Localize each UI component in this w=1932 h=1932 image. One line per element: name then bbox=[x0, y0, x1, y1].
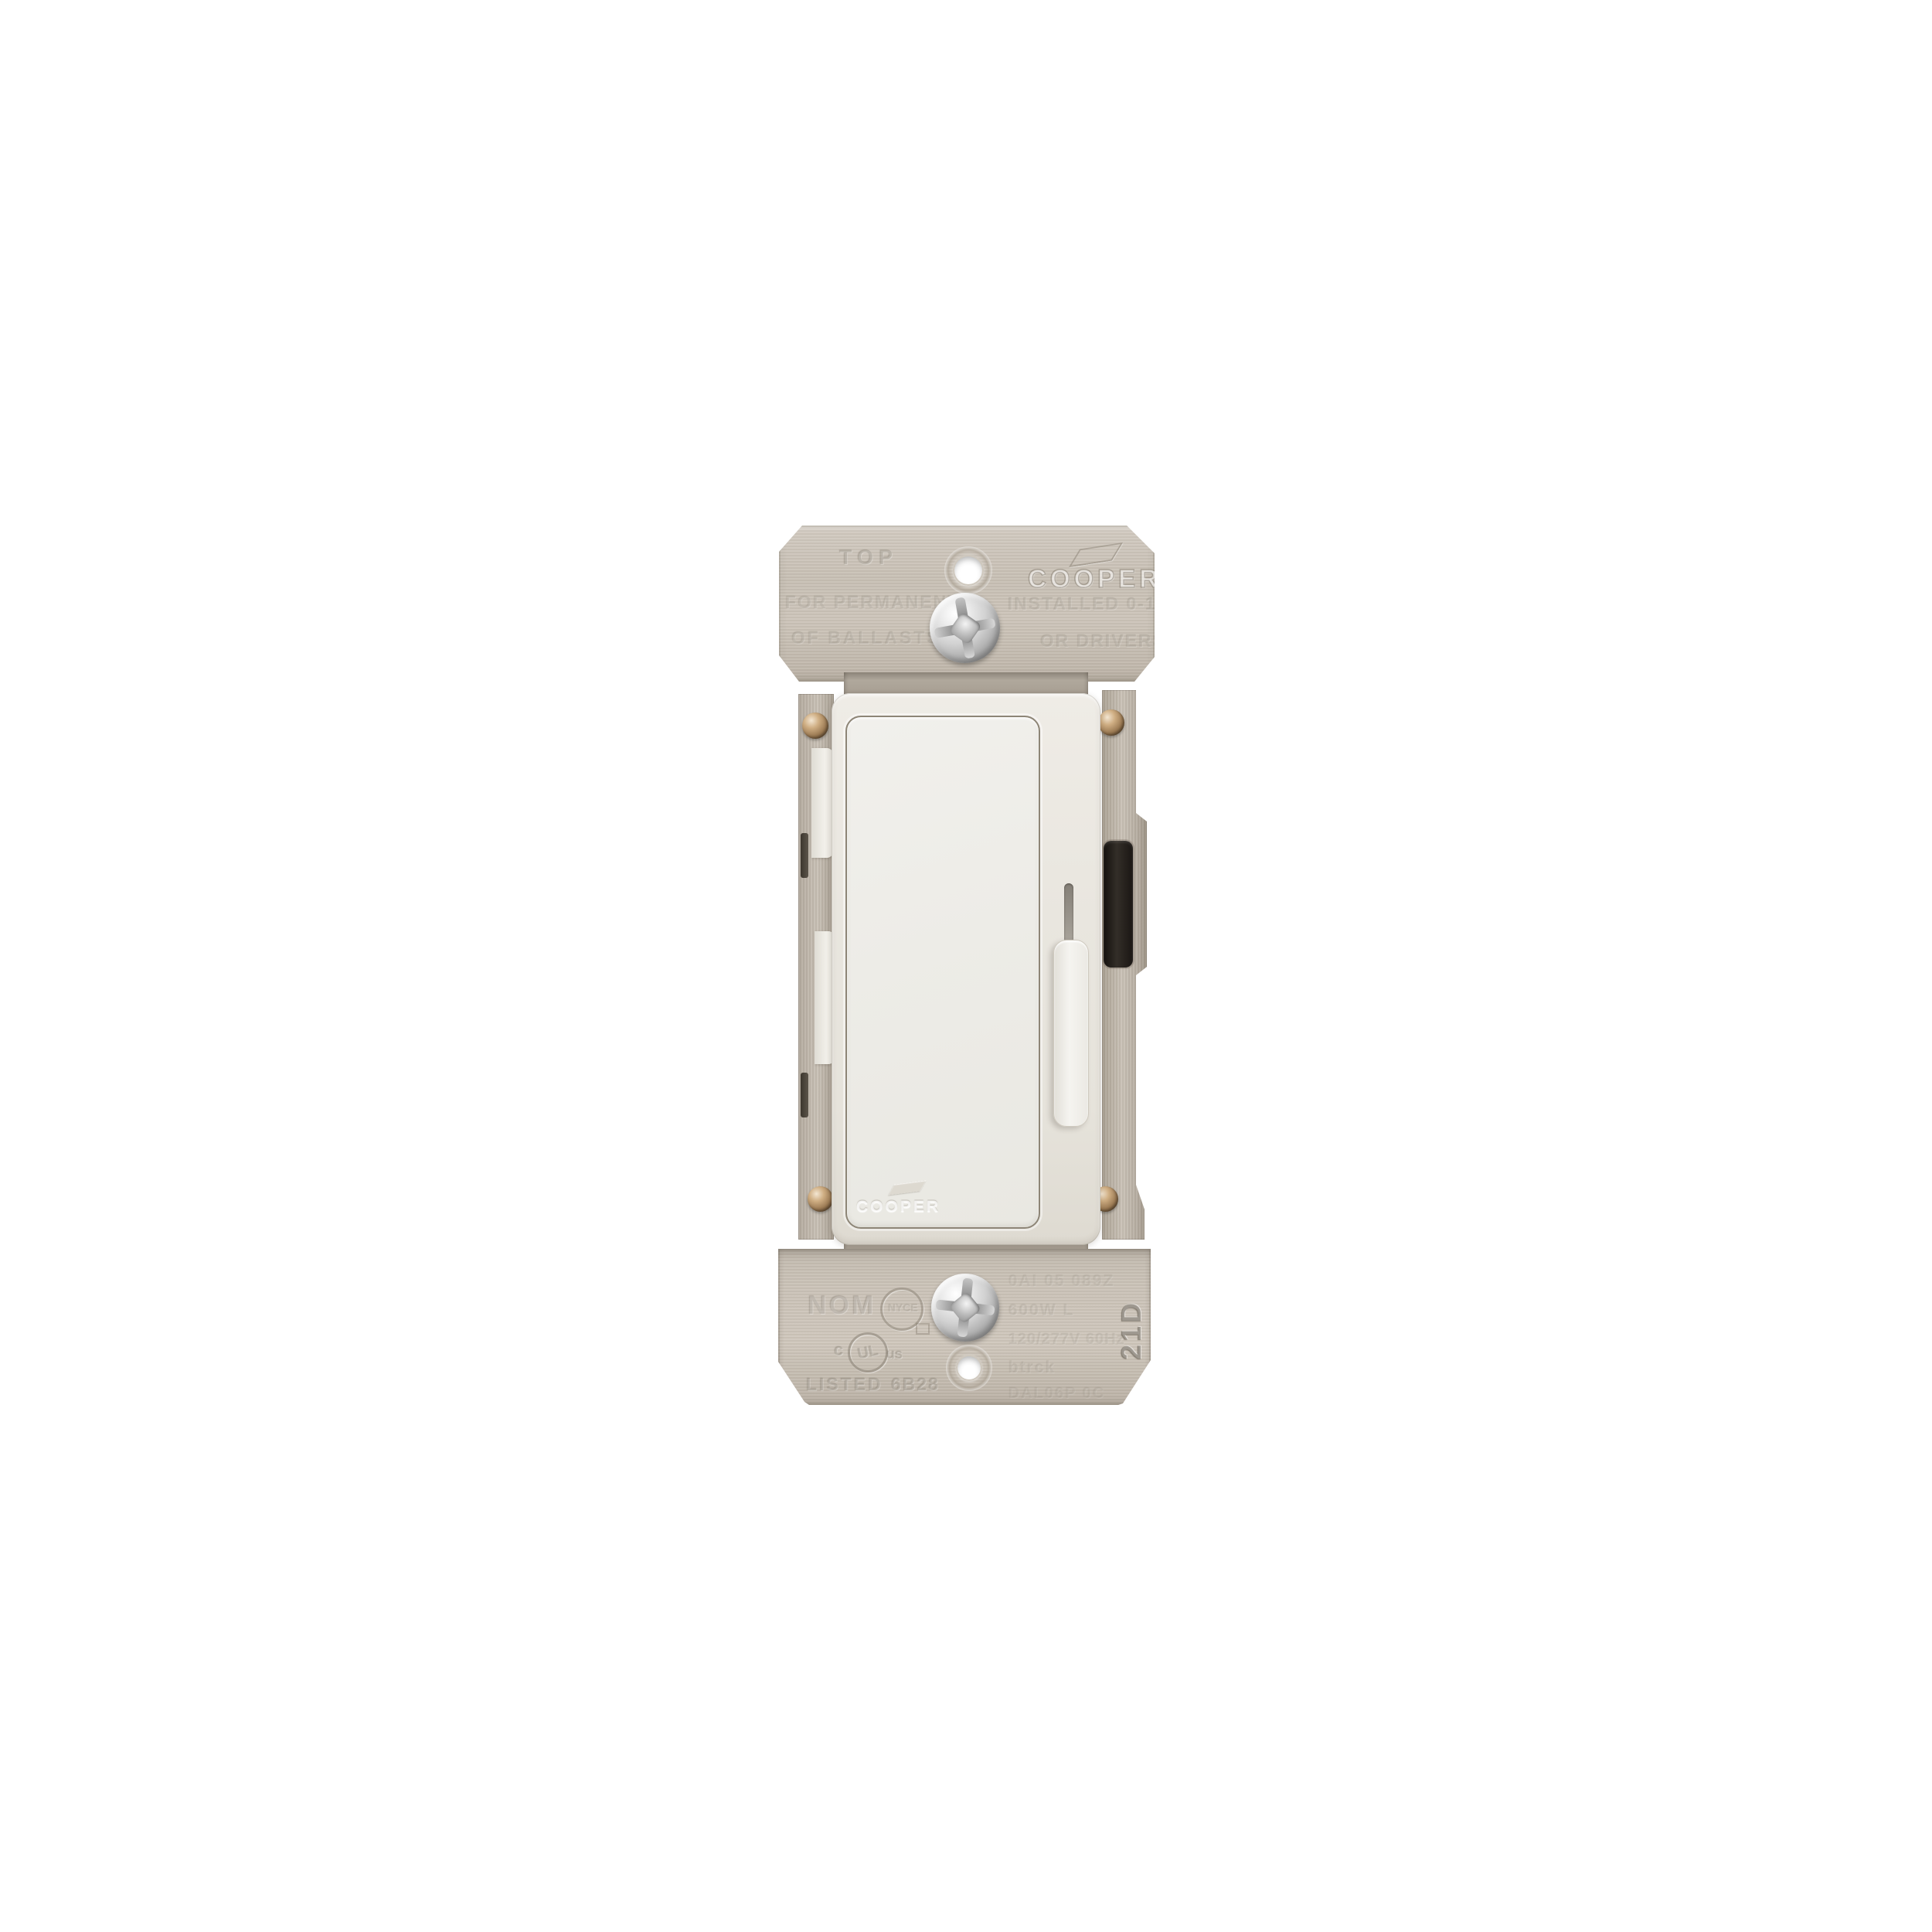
nom-mark: NOM bbox=[808, 1291, 876, 1321]
left-rail-slot-upper bbox=[801, 833, 808, 878]
bottom-mounting-hole bbox=[956, 1355, 982, 1381]
ul-mark-c: c bbox=[834, 1340, 843, 1360]
dimmer-switch-photo: TOP COOPER FOR PERMANENTL INSTALLED 0-10… bbox=[0, 0, 1932, 1932]
top-orientation-label: TOP bbox=[839, 546, 898, 570]
phillips-screw-bottom bbox=[931, 1274, 999, 1342]
rocker-paddle bbox=[845, 716, 1040, 1229]
listed-label: LISTED bbox=[806, 1374, 883, 1395]
ratings-row-4: btrck bbox=[1009, 1359, 1056, 1377]
ratings-row-5: DAL06P 0C bbox=[1009, 1385, 1105, 1403]
product-photo-canvas: TOP COOPER FOR PERMANENTL INSTALLED 0-10… bbox=[0, 0, 1932, 1932]
phillips-screw-top bbox=[930, 593, 1000, 663]
paddle-brand-label: COOPER bbox=[856, 1198, 949, 1215]
ul-listed-mark: UL bbox=[848, 1332, 888, 1372]
cooper-logo-stamp: COOPER bbox=[1028, 564, 1162, 594]
ratings-row-3: 120/277V 60Hz bbox=[1009, 1331, 1125, 1349]
left-rail-slot-lower bbox=[801, 1073, 808, 1117]
strap-text-line2-right: INSTALLED 0-10 bbox=[1008, 594, 1168, 614]
dimmer-indicator-slot bbox=[1064, 883, 1073, 944]
bronze-screw-top-right bbox=[1098, 709, 1124, 736]
dimmer-slider-lever bbox=[1053, 940, 1089, 1127]
ratings-row-2: 600W L bbox=[1009, 1301, 1075, 1320]
side-code-stamp: 21D bbox=[1115, 1300, 1148, 1360]
ratings-row-1: 0AI 05 089Z bbox=[1009, 1272, 1115, 1291]
listed-code: 6B28 bbox=[891, 1374, 940, 1395]
left-mounting-tab-upper bbox=[811, 748, 833, 858]
strap-text-line3-right: OR DRIVERS bbox=[1040, 631, 1166, 651]
phillips-cross-bottom-icon bbox=[928, 1270, 1003, 1345]
phillips-cross-top-icon bbox=[924, 587, 1005, 668]
strap-text-line3-left: OF BALLASTS bbox=[791, 628, 941, 648]
bronze-screw-bottom-left bbox=[808, 1186, 833, 1212]
bronze-screw-top-left bbox=[802, 713, 828, 739]
heat-sink-insert bbox=[1104, 841, 1133, 968]
top-mounting-hole-bevel bbox=[944, 546, 992, 594]
ul-mark-us: us bbox=[886, 1346, 903, 1362]
